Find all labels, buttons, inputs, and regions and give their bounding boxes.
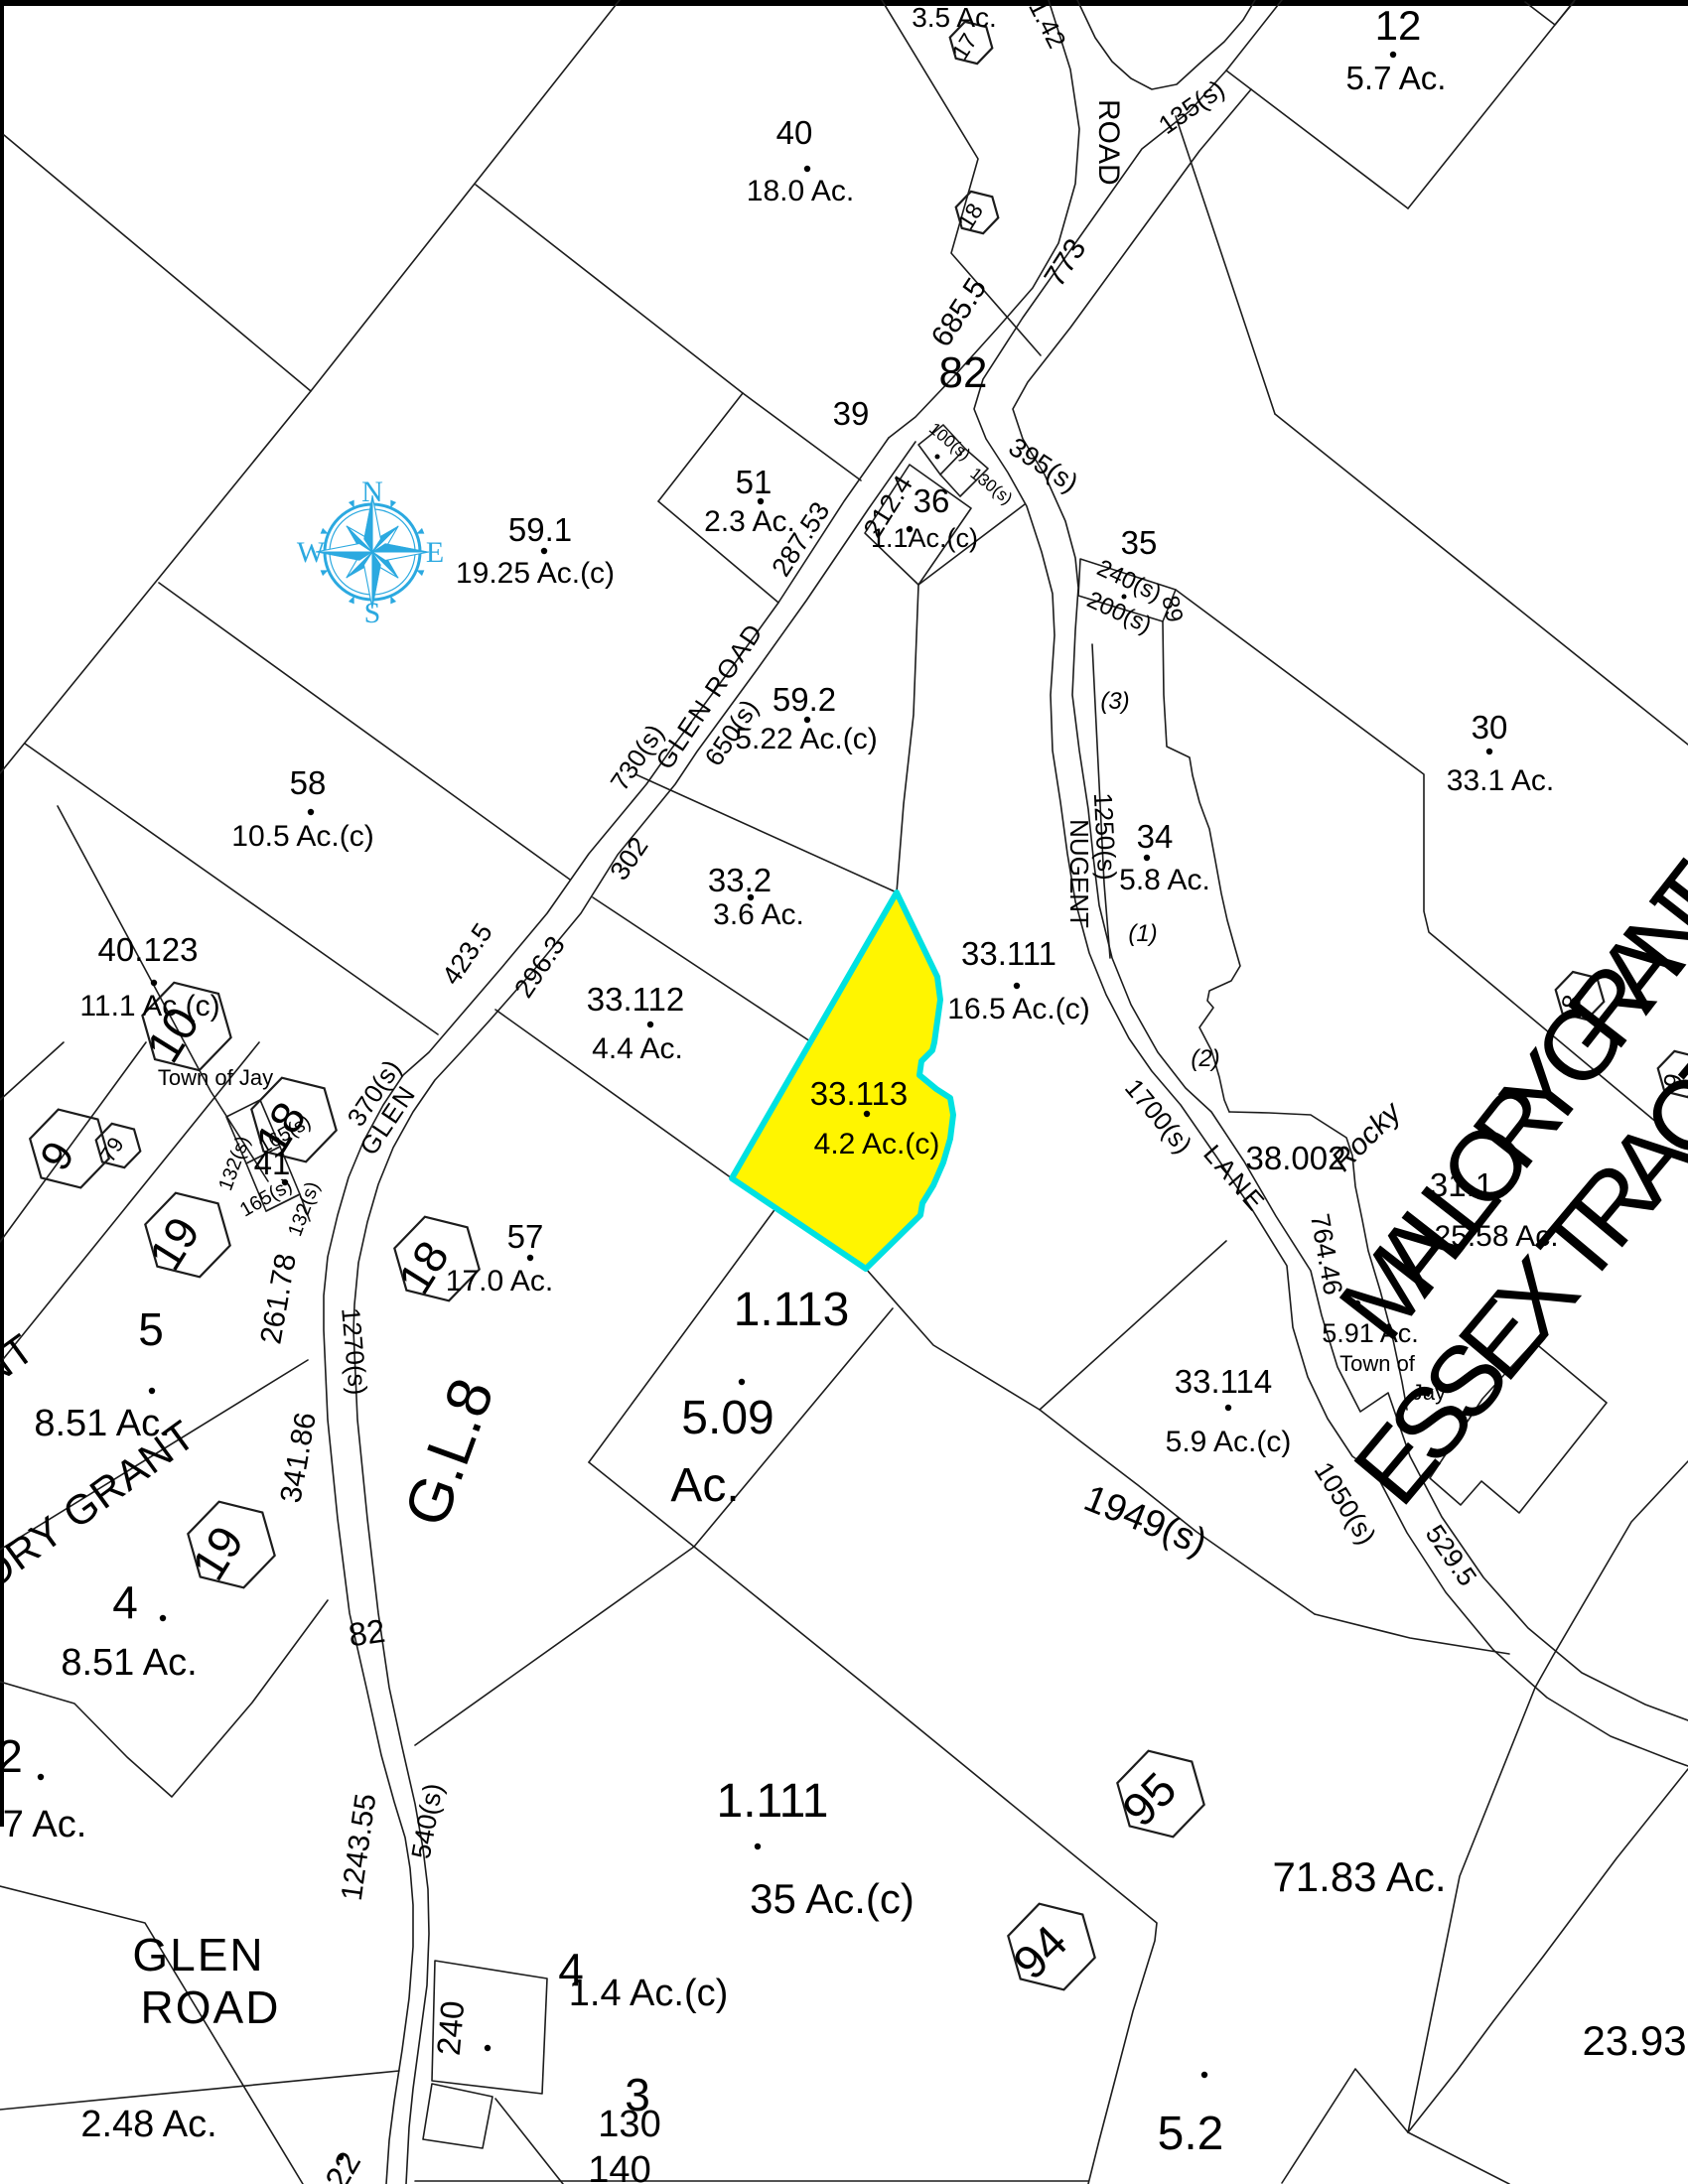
svg-text:4: 4 bbox=[112, 1576, 138, 1628]
svg-text:W: W bbox=[297, 536, 326, 569]
svg-text:33.113: 33.113 bbox=[810, 1075, 908, 1112]
svg-text:5.22 Ac.(c): 5.22 Ac.(c) bbox=[735, 723, 877, 755]
svg-text:(3): (3) bbox=[1100, 688, 1129, 715]
svg-text:5: 5 bbox=[138, 1303, 164, 1355]
svg-text:240: 240 bbox=[430, 1999, 472, 2057]
svg-text:2.3 Ac.: 2.3 Ac. bbox=[704, 505, 795, 538]
svg-text:17.0 Ac.: 17.0 Ac. bbox=[446, 1265, 553, 1297]
svg-text:35 Ac.(c): 35 Ac.(c) bbox=[750, 1875, 914, 1922]
svg-text:57: 57 bbox=[507, 1218, 544, 1255]
svg-text:(2): (2) bbox=[1191, 1045, 1219, 1072]
svg-text:5.7 Ac.: 5.7 Ac. bbox=[1346, 60, 1447, 96]
svg-text:GLEN: GLEN bbox=[132, 1929, 264, 1980]
svg-text:E: E bbox=[426, 536, 444, 569]
svg-text:10.5 Ac.(c): 10.5 Ac.(c) bbox=[231, 820, 373, 853]
svg-text:3.5 Ac.: 3.5 Ac. bbox=[912, 2, 997, 33]
svg-text:19.25 Ac.(c): 19.25 Ac.(c) bbox=[456, 557, 615, 590]
svg-text:Town of Jay: Town of Jay bbox=[158, 1065, 273, 1090]
svg-text:33.1 Ac.: 33.1 Ac. bbox=[1447, 764, 1554, 797]
svg-text:(1): (1) bbox=[1128, 920, 1157, 947]
svg-text:59.2: 59.2 bbox=[773, 681, 836, 718]
svg-text:3.6 Ac.: 3.6 Ac. bbox=[713, 898, 804, 931]
svg-text:N: N bbox=[361, 476, 383, 508]
svg-text:11.1 Ac.(c): 11.1 Ac.(c) bbox=[79, 990, 219, 1023]
svg-text:5.8 Ac.: 5.8 Ac. bbox=[1119, 864, 1210, 896]
svg-text:71.83 Ac.: 71.83 Ac. bbox=[1272, 1853, 1446, 1900]
svg-text:33.111: 33.111 bbox=[961, 935, 1056, 972]
svg-text:39: 39 bbox=[833, 395, 870, 432]
svg-text:1.4 Ac.(c): 1.4 Ac.(c) bbox=[569, 1973, 729, 2014]
svg-text:140: 140 bbox=[588, 2149, 650, 2184]
svg-text:4.2 Ac.(c): 4.2 Ac.(c) bbox=[814, 1128, 940, 1160]
svg-text:33.114: 33.114 bbox=[1175, 1363, 1272, 1400]
svg-text:36: 36 bbox=[914, 482, 950, 519]
svg-text:S: S bbox=[364, 597, 381, 629]
svg-text:12: 12 bbox=[1375, 2, 1422, 49]
svg-text:Ac.: Ac. bbox=[670, 1459, 739, 1512]
svg-text:130: 130 bbox=[598, 2104, 660, 2145]
svg-text:NUGENT: NUGENT bbox=[1064, 819, 1094, 928]
svg-text:4.4 Ac.: 4.4 Ac. bbox=[592, 1032, 683, 1065]
svg-text:23.93: 23.93 bbox=[1582, 2017, 1686, 2064]
svg-text:16.5 Ac.(c): 16.5 Ac.(c) bbox=[947, 993, 1089, 1025]
svg-text:18.0 Ac.: 18.0 Ac. bbox=[747, 175, 854, 207]
svg-text:2.48 Ac.: 2.48 Ac. bbox=[80, 2104, 216, 2145]
svg-text:1.111: 1.111 bbox=[717, 1775, 829, 1828]
svg-text:1.113: 1.113 bbox=[734, 1284, 850, 1336]
svg-text:82: 82 bbox=[347, 1612, 388, 1654]
svg-text:ROAD: ROAD bbox=[1092, 99, 1125, 186]
svg-text:5.2: 5.2 bbox=[1158, 2108, 1224, 2160]
svg-text:5.09: 5.09 bbox=[681, 1392, 774, 1444]
svg-text:33.2: 33.2 bbox=[708, 862, 772, 898]
svg-text:40: 40 bbox=[776, 114, 813, 151]
svg-text:7 Ac.: 7 Ac. bbox=[3, 1804, 87, 1845]
svg-text:58: 58 bbox=[290, 764, 327, 801]
svg-text:40.123: 40.123 bbox=[98, 931, 199, 968]
svg-text:35: 35 bbox=[1121, 524, 1158, 561]
svg-text:1.1Ac.(c): 1.1Ac.(c) bbox=[871, 523, 978, 553]
svg-text:89: 89 bbox=[1156, 594, 1188, 625]
svg-text:ROAD: ROAD bbox=[141, 1981, 281, 2033]
svg-text:82: 82 bbox=[939, 348, 988, 397]
svg-text:33.112: 33.112 bbox=[587, 981, 684, 1018]
svg-text:5.9 Ac.(c): 5.9 Ac.(c) bbox=[1166, 1426, 1292, 1458]
svg-text:8.51 Ac.: 8.51 Ac. bbox=[61, 1642, 197, 1684]
svg-text:30: 30 bbox=[1472, 709, 1508, 746]
svg-text:34: 34 bbox=[1137, 818, 1174, 855]
svg-text:51: 51 bbox=[736, 464, 773, 500]
svg-text:59.1: 59.1 bbox=[508, 511, 572, 548]
svg-text:2: 2 bbox=[0, 1730, 23, 1782]
